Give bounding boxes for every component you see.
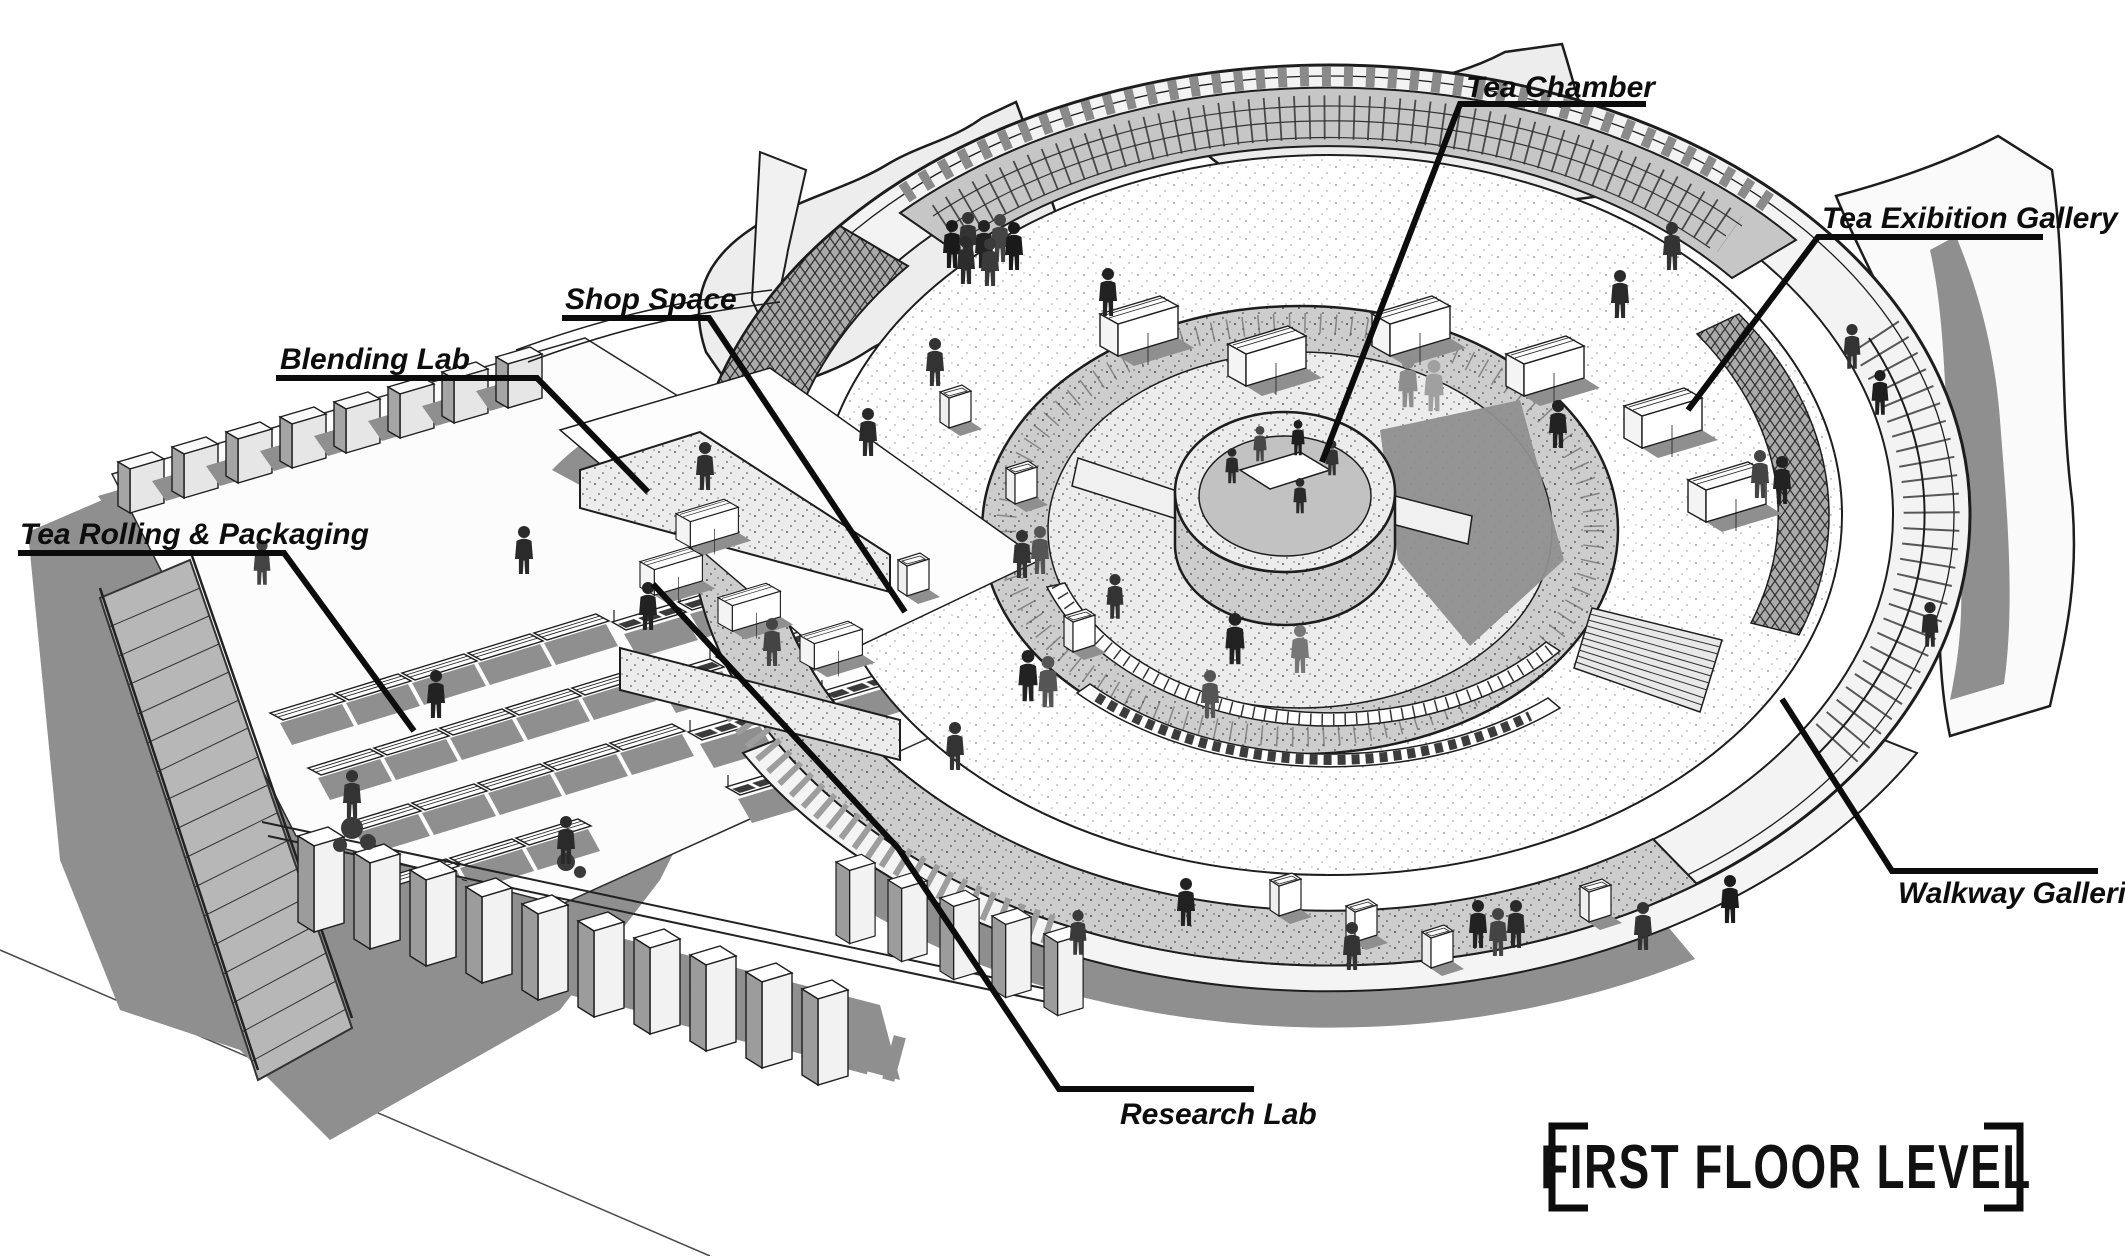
sheet-title: FIRST FLOOR LEVEL	[1540, 1132, 2031, 1201]
label-blending-lab: Blending Lab	[280, 343, 470, 376]
axonometric-drawing: Tea Chamber Tea Exibition Gallery Shop S…	[0, 0, 2125, 1256]
label-tea-exibition-gallery: Tea Exibition Gallery	[1822, 202, 2119, 235]
tea-chamber-cylinder	[1175, 412, 1395, 625]
title-block: FIRST FLOOR LEVEL	[1540, 1126, 2031, 1208]
label-shop-space: Shop Space	[565, 283, 737, 316]
label-tea-rolling-packaging: Tea Rolling & Packaging	[20, 518, 369, 551]
floor-plan-sheet: Tea Chamber Tea Exibition Gallery Shop S…	[0, 0, 2125, 1256]
label-research-lab: Research Lab	[1120, 1098, 1317, 1131]
label-walkway-galleries: Walkway Galleries	[1898, 877, 2125, 910]
label-tea-chamber: Tea Chamber	[1466, 71, 1657, 104]
